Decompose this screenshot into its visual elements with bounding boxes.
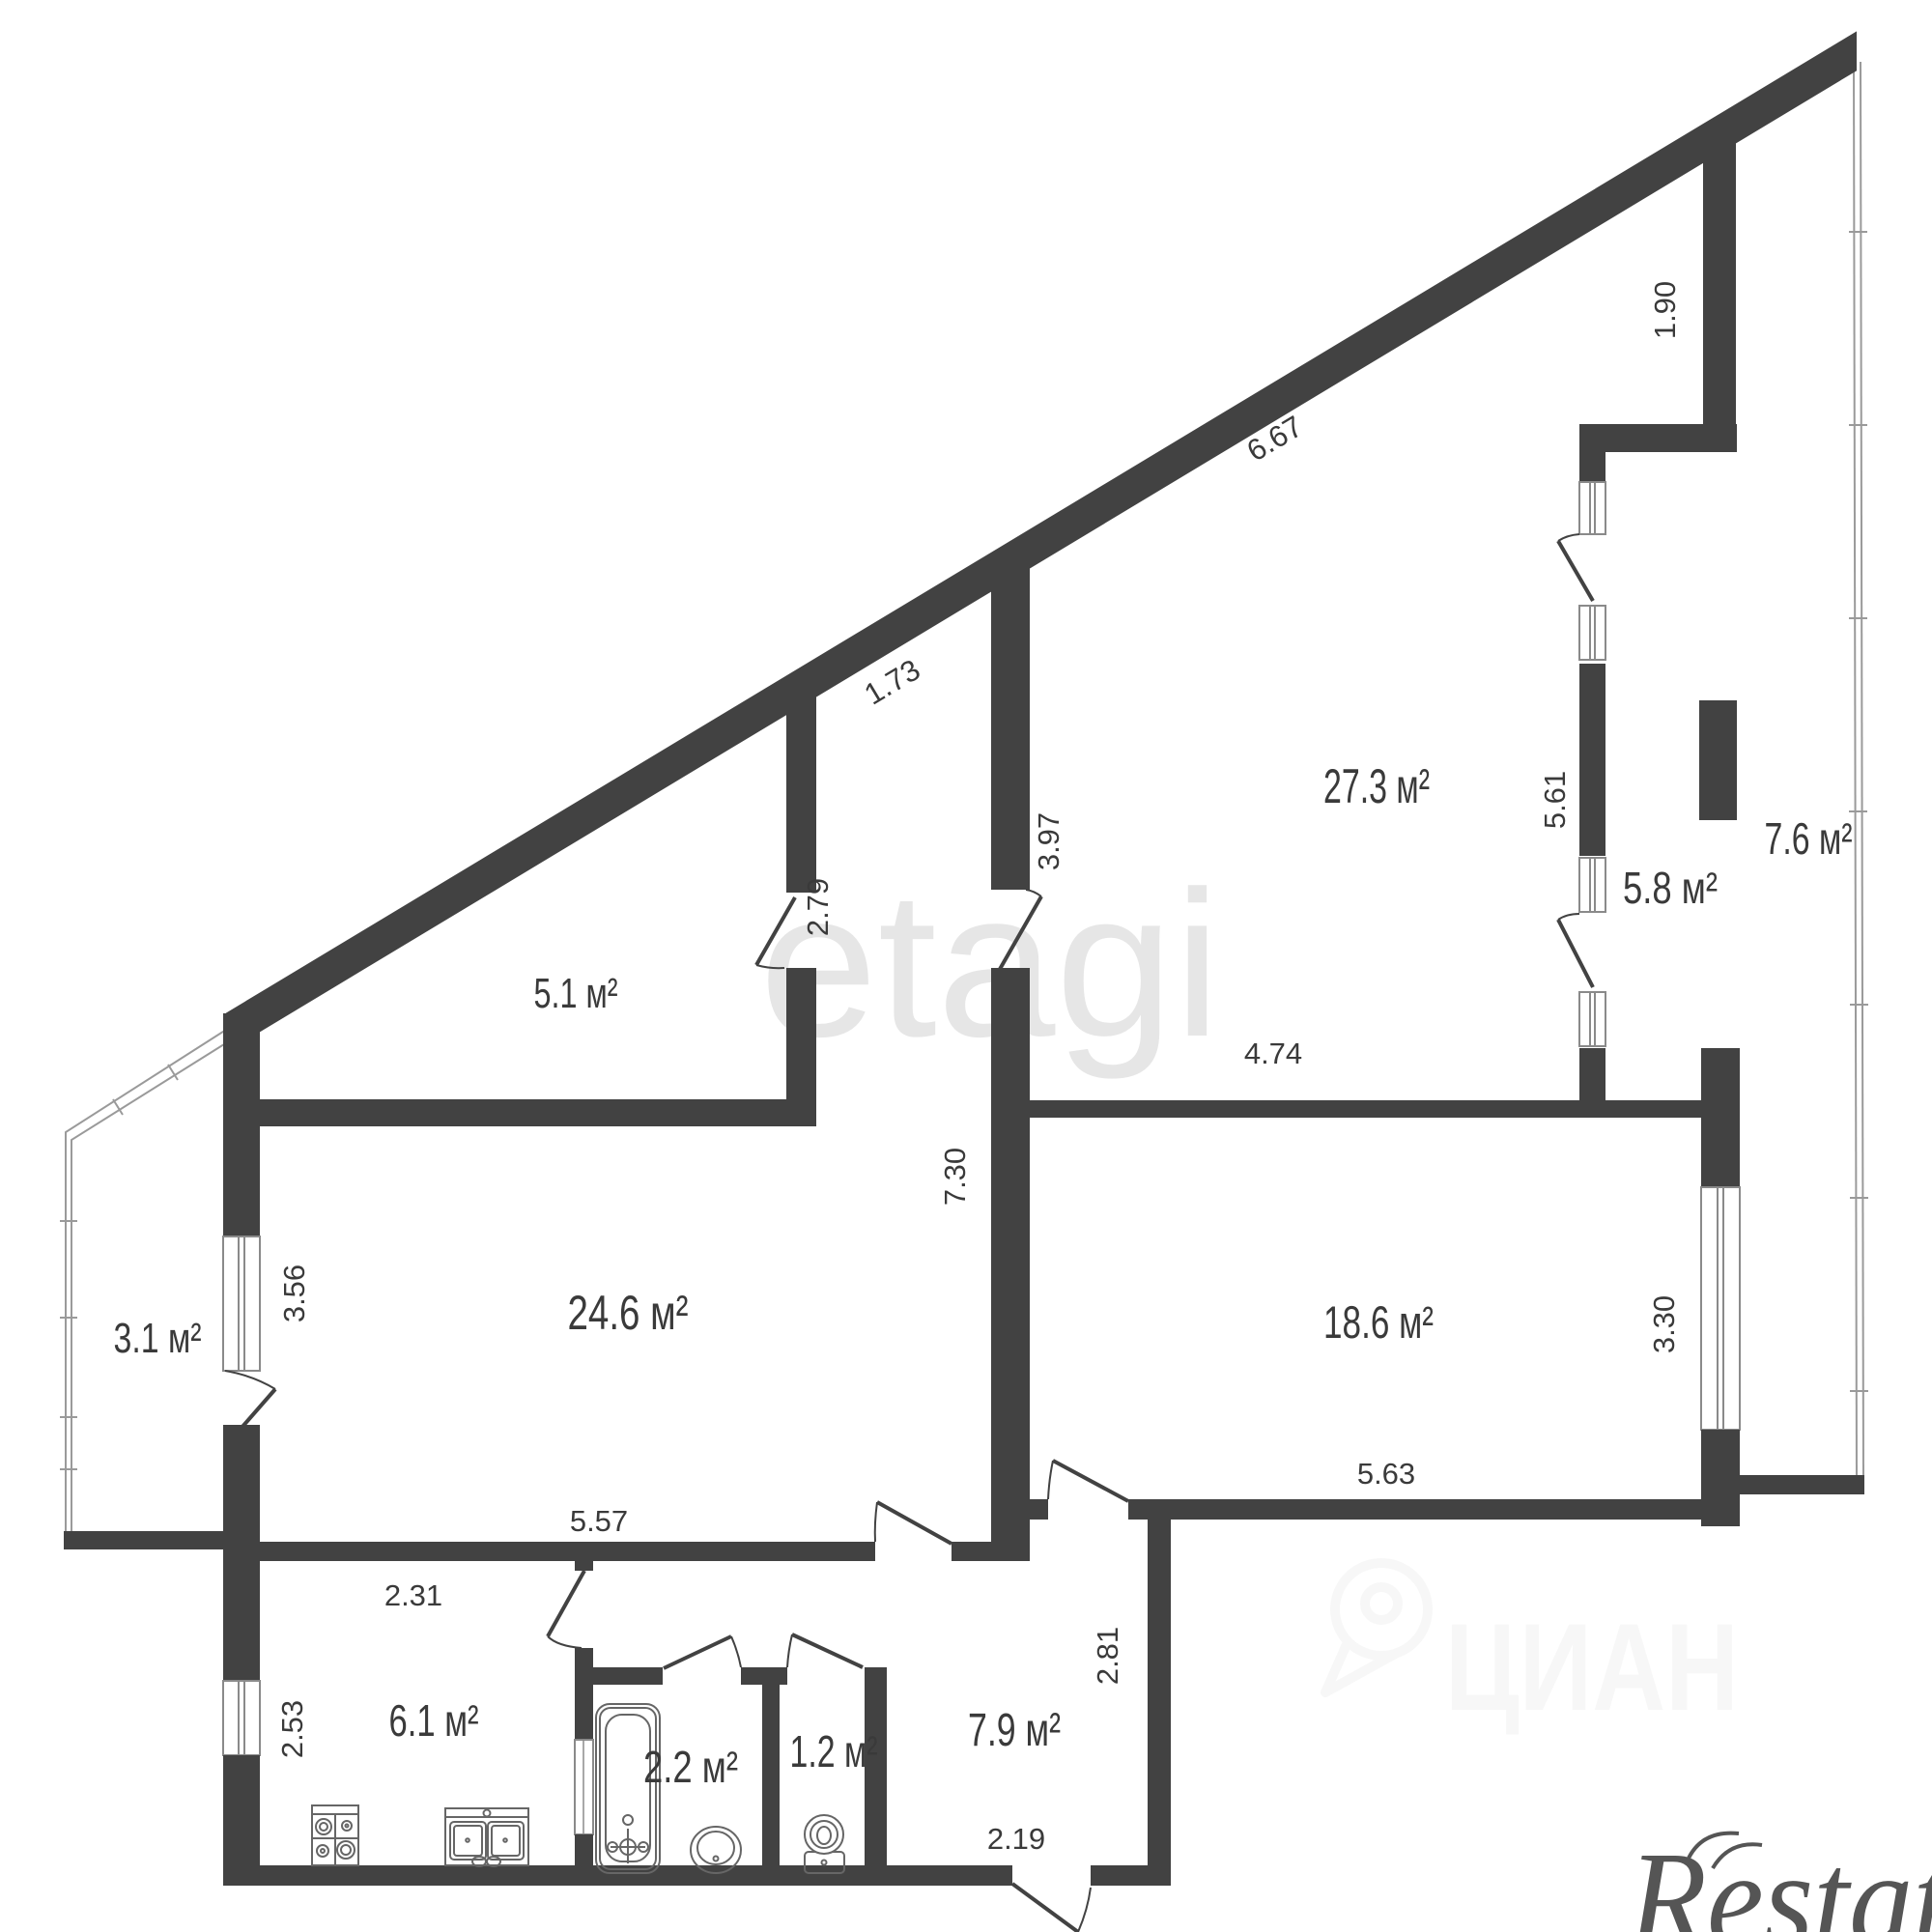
svg-text:ЦИАН: ЦИАН	[1445, 1599, 1739, 1737]
svg-text:5.61: 5.61	[1538, 771, 1572, 829]
svg-text:7.9 м²: 7.9 м²	[968, 1705, 1061, 1756]
svg-text:3.30: 3.30	[1647, 1295, 1681, 1353]
svg-text:Restate: Restate	[1628, 1823, 1932, 1932]
svg-text:3.56: 3.56	[277, 1264, 311, 1322]
svg-text:2.19: 2.19	[987, 1822, 1045, 1856]
svg-text:3.1 м²: 3.1 м²	[114, 1315, 202, 1362]
svg-text:2.79: 2.79	[801, 878, 835, 936]
svg-text:18.6 м²: 18.6 м²	[1323, 1296, 1434, 1348]
svg-text:2.81: 2.81	[1091, 1627, 1124, 1685]
svg-text:7.30: 7.30	[938, 1148, 972, 1206]
svg-text:2.53: 2.53	[275, 1700, 309, 1758]
svg-text:4.74: 4.74	[1244, 1037, 1302, 1070]
svg-text:1.90: 1.90	[1648, 281, 1682, 339]
svg-text:6.1 м²: 6.1 м²	[389, 1695, 479, 1746]
svg-text:5.8 м²: 5.8 м²	[1623, 863, 1718, 913]
svg-text:5.57: 5.57	[570, 1504, 628, 1538]
svg-text:27.3 м²: 27.3 м²	[1323, 759, 1430, 813]
svg-text:24.6 м²: 24.6 м²	[568, 1286, 689, 1340]
svg-text:7.6 м²: 7.6 м²	[1765, 813, 1853, 864]
svg-text:5.63: 5.63	[1357, 1457, 1415, 1491]
svg-text:2.31: 2.31	[384, 1578, 442, 1612]
svg-text:2.2 м²: 2.2 м²	[643, 1742, 738, 1792]
svg-text:1.2 м²: 1.2 м²	[790, 1726, 878, 1776]
svg-text:3.97: 3.97	[1032, 812, 1065, 870]
svg-text:5.1 м²: 5.1 м²	[534, 970, 618, 1017]
